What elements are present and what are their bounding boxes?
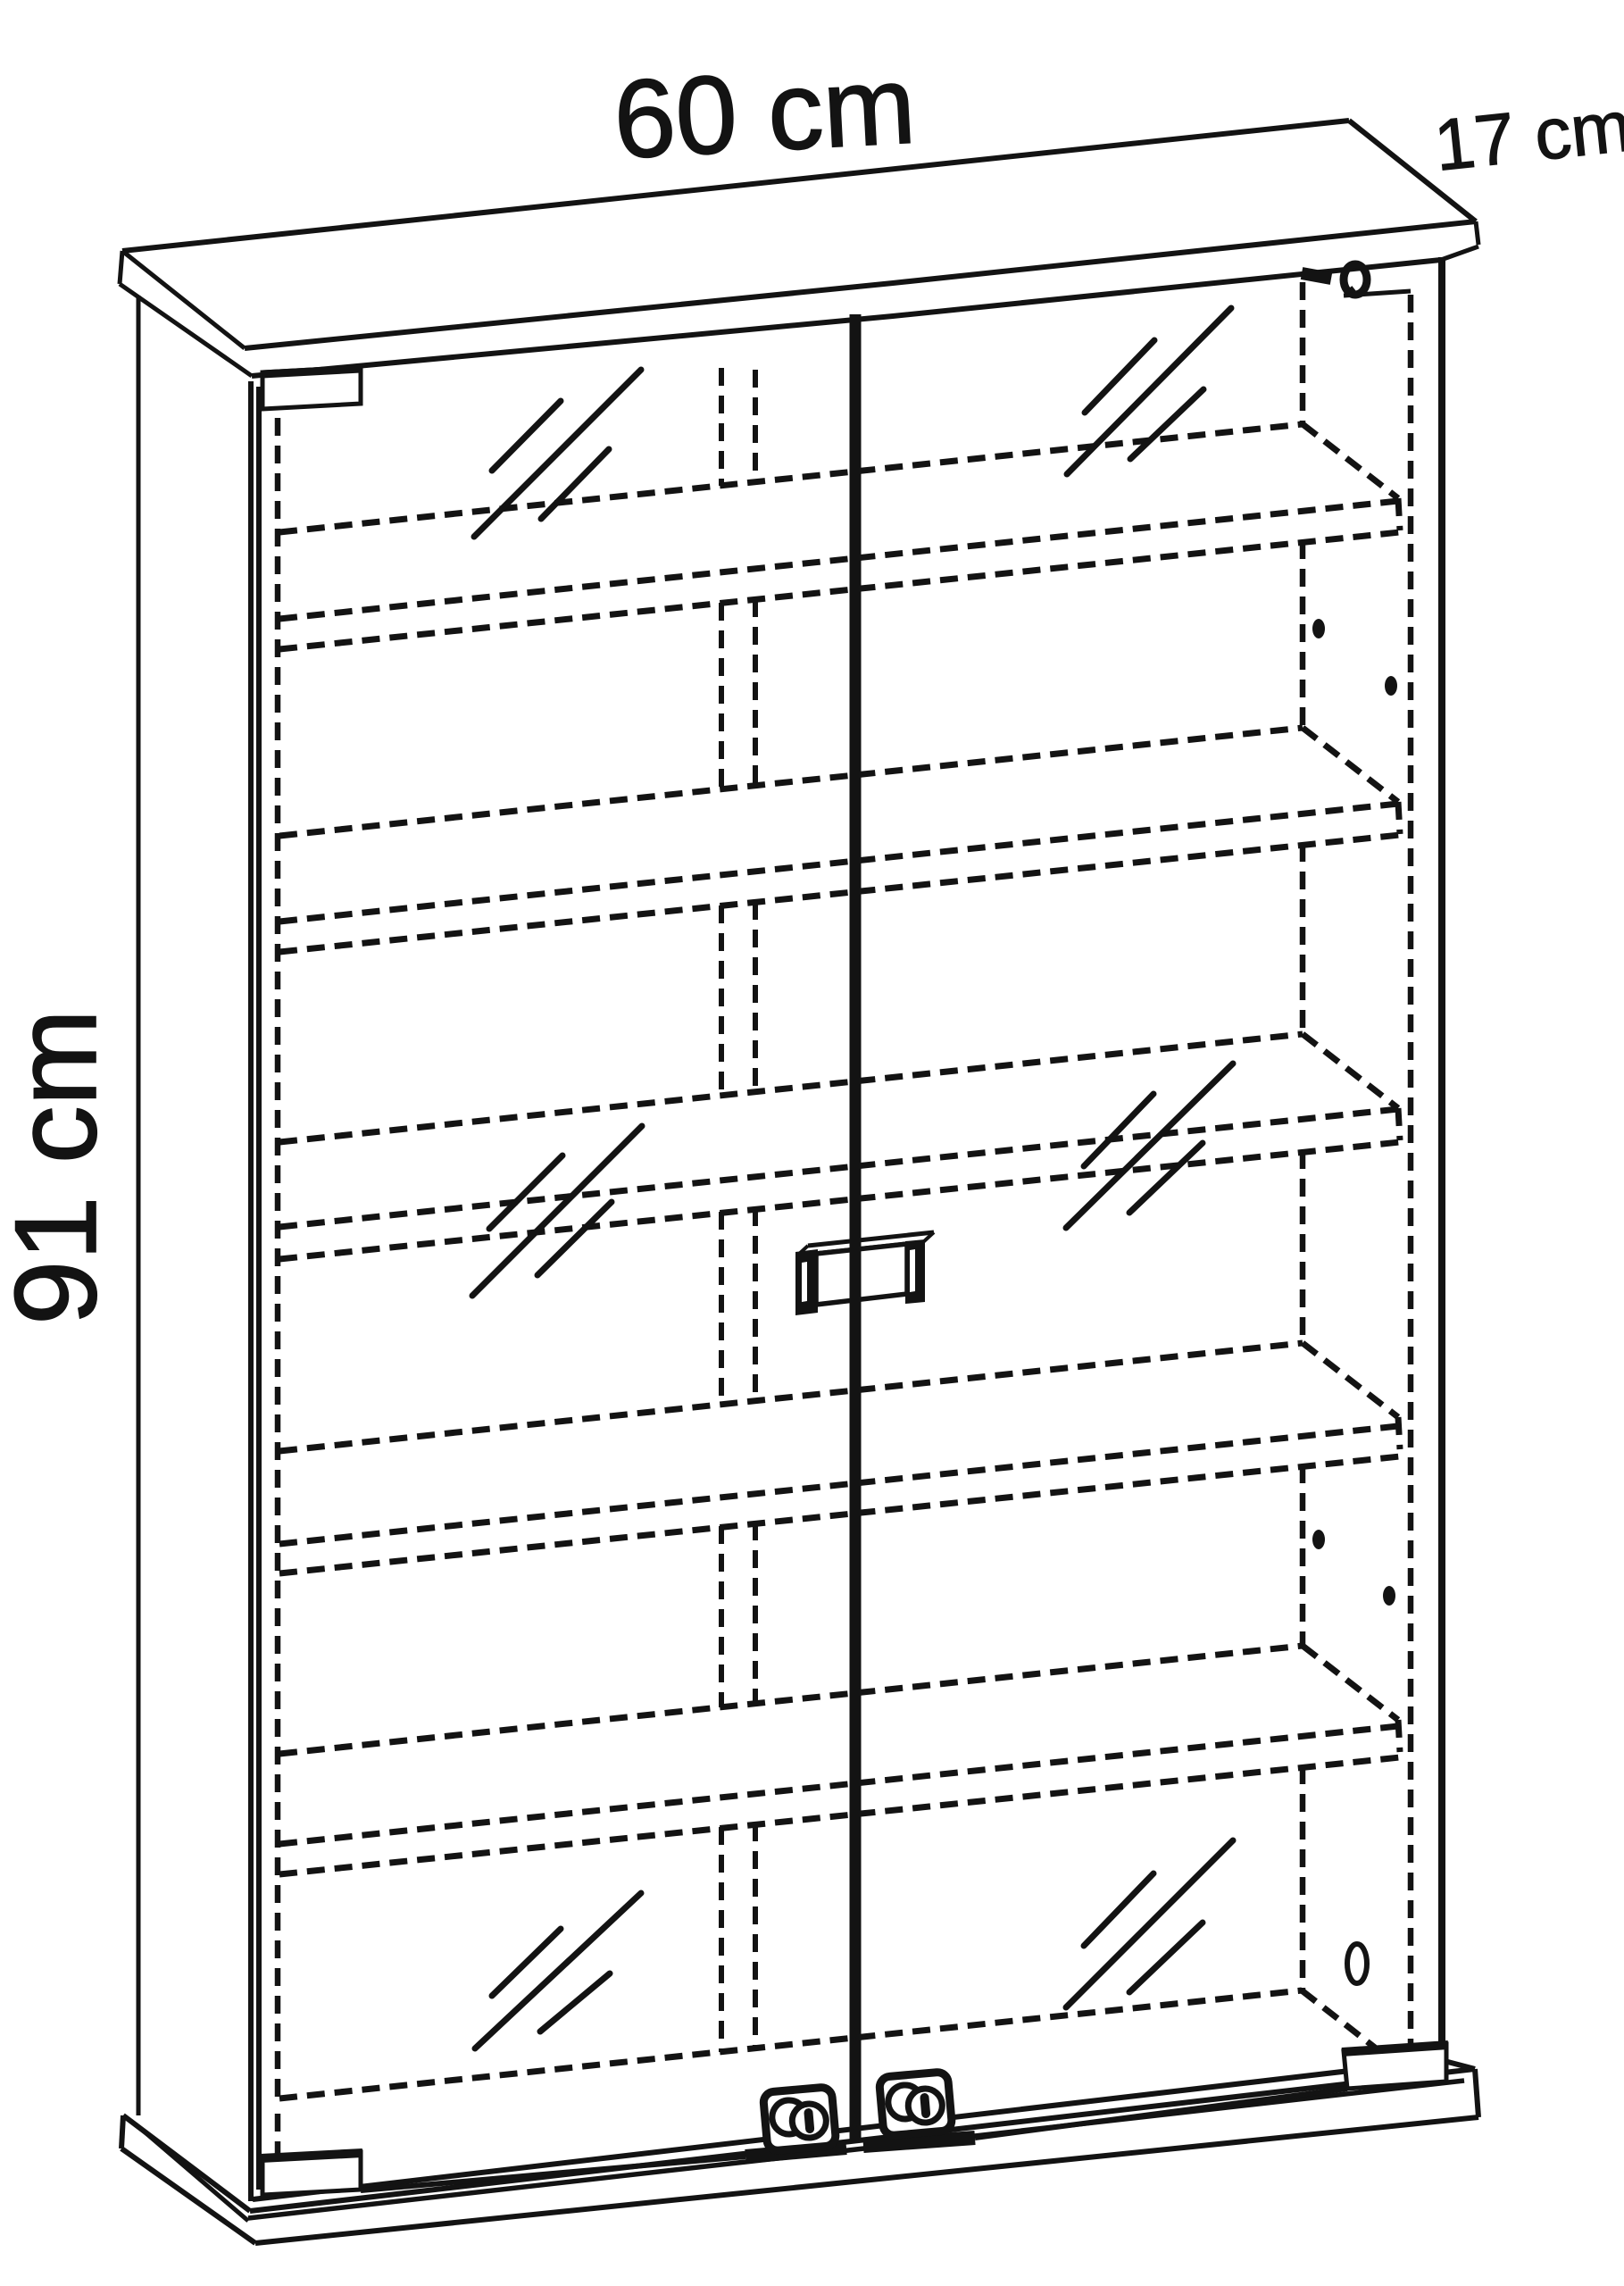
svg-text:60 cm: 60 cm (611, 43, 918, 181)
svg-text:91 cm: 91 cm (0, 1009, 121, 1325)
